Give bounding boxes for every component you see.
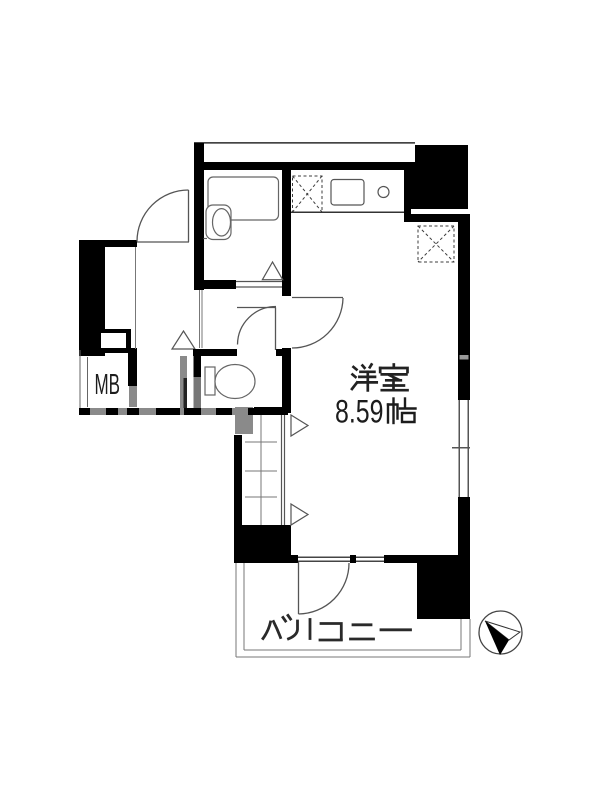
svg-text:8.59: 8.59 (335, 394, 384, 430)
svg-text:MB: MB (95, 369, 121, 401)
